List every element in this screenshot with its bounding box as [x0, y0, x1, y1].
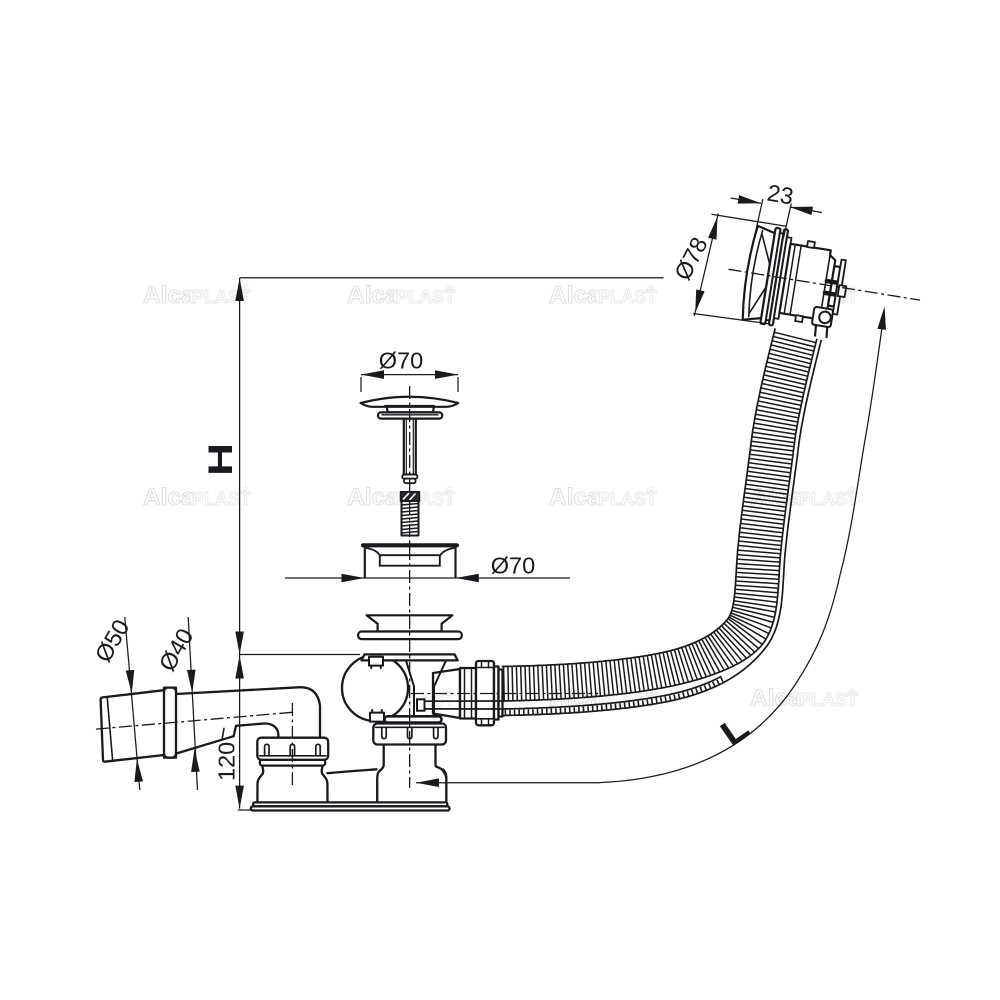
svg-text:H: H [201, 443, 240, 476]
svg-text:Alca: Alca [549, 282, 601, 309]
svg-text:120: 120 [214, 742, 240, 781]
svg-text:Alca: Alca [549, 484, 601, 511]
svg-text:®: ® [445, 486, 453, 498]
svg-text:Alca: Alca [347, 282, 399, 309]
svg-text:Alca: Alca [347, 484, 399, 511]
svg-text:Ø70: Ø70 [491, 553, 535, 579]
svg-text:Ø70: Ø70 [379, 348, 423, 374]
svg-text:®: ® [848, 486, 856, 498]
svg-text:Alca: Alca [143, 282, 195, 309]
svg-text:®: ® [647, 284, 655, 296]
svg-text:Alca: Alca [750, 685, 802, 712]
svg-text:Alca: Alca [143, 484, 195, 511]
svg-text:®: ® [848, 284, 856, 296]
svg-text:®: ® [445, 284, 453, 296]
svg-text:®: ® [647, 486, 655, 498]
svg-text:®: ® [241, 486, 249, 498]
svg-text:23: 23 [765, 180, 795, 210]
svg-text:®: ® [848, 687, 856, 699]
